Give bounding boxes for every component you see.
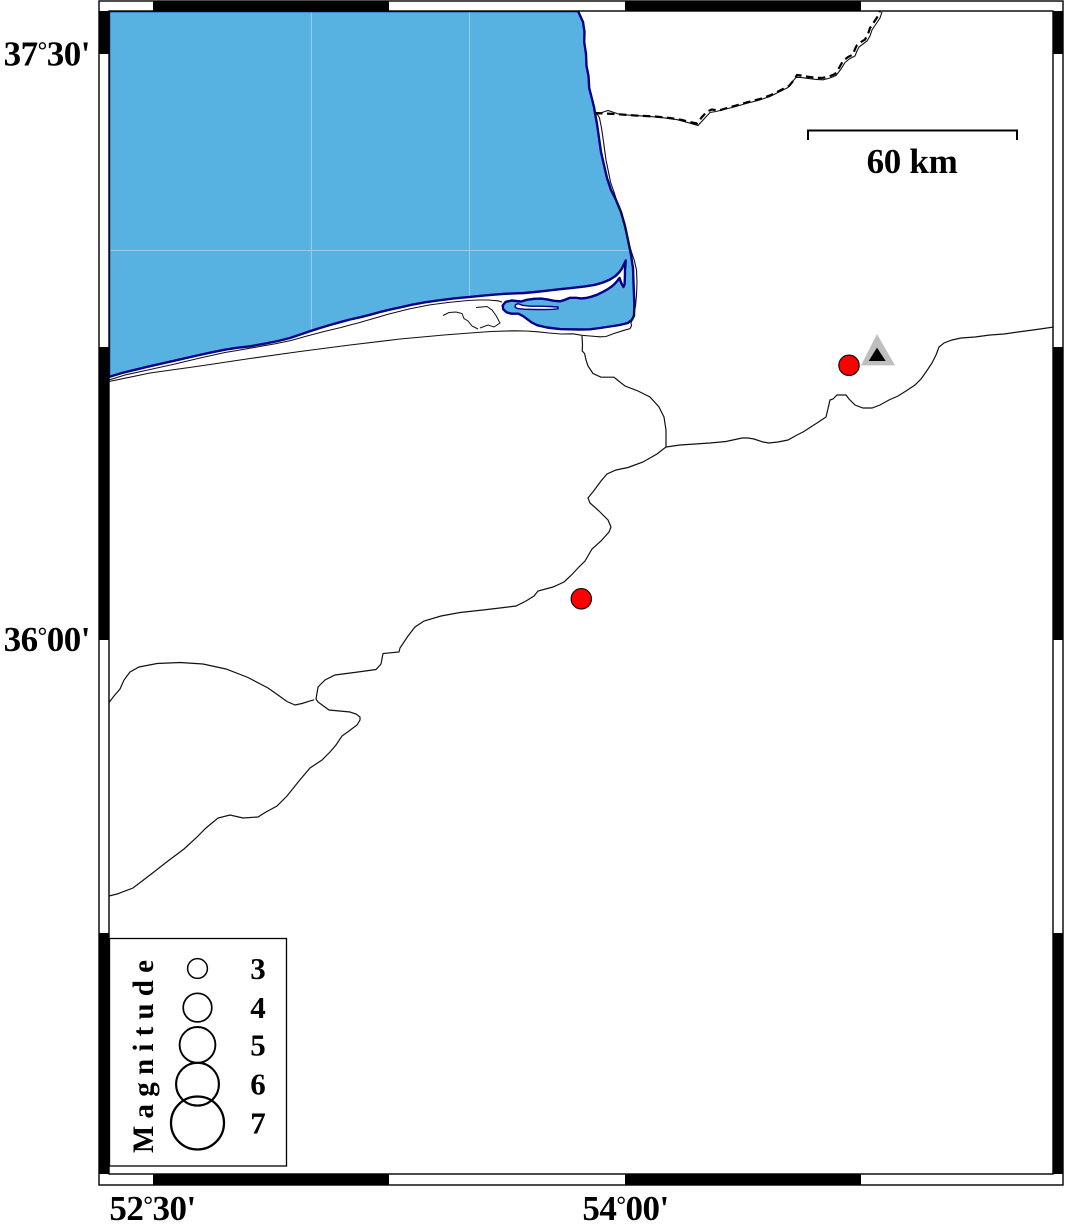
svg-text:4: 4 xyxy=(250,990,266,1025)
svg-text:54°00': 54°00' xyxy=(582,1189,668,1224)
svg-text:60 km: 60 km xyxy=(867,142,958,181)
svg-text:3: 3 xyxy=(250,951,266,986)
svg-text:52°30': 52°30' xyxy=(109,1189,195,1224)
svg-text:7: 7 xyxy=(250,1106,266,1141)
svg-text:M a g n i t u d e: M a g n i t u d e xyxy=(127,960,160,1153)
svg-text:5: 5 xyxy=(250,1027,266,1062)
svg-text:37°30': 37°30' xyxy=(4,35,90,74)
svg-text:36°00': 36°00' xyxy=(4,620,90,659)
svg-text:6: 6 xyxy=(250,1067,266,1102)
